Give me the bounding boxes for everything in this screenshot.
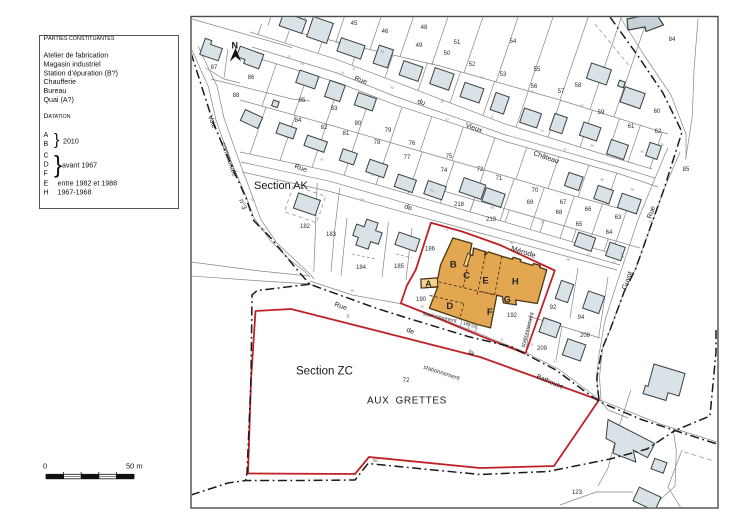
svg-text:70: 70 xyxy=(532,188,539,194)
svg-text:GRETTES: GRETTES xyxy=(396,396,447,407)
svg-text:58: 58 xyxy=(575,83,582,89)
svg-text:183: 183 xyxy=(326,232,337,238)
svg-text:46: 46 xyxy=(382,29,389,35)
svg-text:85: 85 xyxy=(299,98,306,104)
svg-text:219: 219 xyxy=(486,217,497,223)
svg-text:C: C xyxy=(463,271,470,282)
svg-text:Atelier de fabrication: Atelier de fabrication xyxy=(44,52,109,60)
svg-text:81: 81 xyxy=(343,131,350,137)
svg-text:64: 64 xyxy=(606,230,613,236)
svg-text:Station d’épuration (B?): Station d’épuration (B?) xyxy=(44,69,119,77)
svg-text:}: } xyxy=(54,132,60,149)
svg-text:B: B xyxy=(450,260,457,271)
svg-text:45: 45 xyxy=(351,21,358,27)
svg-text:190: 190 xyxy=(416,297,427,303)
svg-text:55: 55 xyxy=(534,67,541,73)
svg-text:68: 68 xyxy=(556,210,563,216)
svg-text:Magasin industriel: Magasin industriel xyxy=(44,60,102,68)
svg-text:H: H xyxy=(44,189,49,197)
svg-text:DATATION: DATATION xyxy=(44,113,71,120)
svg-text:192: 192 xyxy=(507,313,518,319)
svg-text:Chaufferie: Chaufferie xyxy=(44,78,77,86)
svg-text:74: 74 xyxy=(441,168,448,174)
svg-text:72: 72 xyxy=(477,167,484,173)
svg-text:69: 69 xyxy=(527,200,534,206)
svg-text:Bureau: Bureau xyxy=(44,87,67,95)
svg-text:84: 84 xyxy=(669,37,676,43)
svg-text:182: 182 xyxy=(300,224,311,230)
svg-text:2010: 2010 xyxy=(63,138,79,146)
svg-text:66: 66 xyxy=(585,207,592,213)
svg-text:63: 63 xyxy=(615,215,622,221)
svg-text:1967-1968: 1967-1968 xyxy=(58,189,92,197)
svg-text:208: 208 xyxy=(580,333,591,339)
svg-text:61: 61 xyxy=(628,124,635,130)
svg-text:A: A xyxy=(425,279,431,289)
svg-text:71: 71 xyxy=(496,176,503,182)
svg-text:50: 50 xyxy=(444,51,451,57)
svg-text:209: 209 xyxy=(537,346,548,352)
svg-text:53: 53 xyxy=(500,72,507,78)
svg-text:48: 48 xyxy=(421,25,428,31)
svg-text:75: 75 xyxy=(446,154,453,160)
svg-text:A: A xyxy=(44,131,49,139)
svg-text:76: 76 xyxy=(409,141,416,147)
svg-text:Quai (A?): Quai (A?) xyxy=(44,96,74,104)
svg-text:50 m: 50 m xyxy=(126,462,143,471)
svg-text:85: 85 xyxy=(683,167,690,173)
svg-text:F: F xyxy=(487,307,493,318)
svg-text:86: 86 xyxy=(248,75,255,81)
svg-text:E: E xyxy=(44,180,49,188)
svg-text:83: 83 xyxy=(331,106,338,112)
svg-text:57: 57 xyxy=(558,89,565,95)
svg-text:62: 62 xyxy=(655,129,662,135)
svg-text:87: 87 xyxy=(211,65,218,71)
svg-text:F: F xyxy=(44,170,49,178)
svg-text:avant 1967: avant 1967 xyxy=(62,162,97,170)
svg-text:54: 54 xyxy=(510,39,517,45)
svg-text:65: 65 xyxy=(576,222,583,228)
svg-text:80: 80 xyxy=(355,121,362,127)
svg-text:82: 82 xyxy=(321,125,328,131)
svg-text:218: 218 xyxy=(454,202,465,208)
svg-text:AUX: AUX xyxy=(367,396,389,407)
svg-text:123: 123 xyxy=(572,490,583,496)
svg-text:E: E xyxy=(482,276,488,287)
svg-text:0: 0 xyxy=(43,462,47,471)
svg-text:Section AK: Section AK xyxy=(254,180,308,192)
svg-text:186: 186 xyxy=(425,247,436,253)
svg-text:Section ZC: Section ZC xyxy=(296,366,353,378)
svg-text:72: 72 xyxy=(403,378,410,384)
svg-text:185: 185 xyxy=(394,264,405,270)
svg-text:51: 51 xyxy=(454,40,461,46)
svg-text:67: 67 xyxy=(560,200,567,206)
svg-text:59: 59 xyxy=(598,110,605,116)
svg-text:52: 52 xyxy=(469,62,476,68)
svg-text:entre 1982 et 1988: entre 1982 et 1988 xyxy=(58,180,118,188)
svg-text:78: 78 xyxy=(374,140,381,146)
svg-text:94: 94 xyxy=(578,315,585,321)
svg-text:B: B xyxy=(44,140,49,148)
svg-text:84: 84 xyxy=(295,118,302,124)
svg-text:184: 184 xyxy=(356,265,367,271)
svg-text:}: } xyxy=(54,152,62,179)
svg-text:92: 92 xyxy=(550,305,557,311)
svg-text:H: H xyxy=(512,276,519,287)
svg-text:PARTIES CONSTITUANTES: PARTIES CONSTITUANTES xyxy=(44,35,115,42)
svg-text:D: D xyxy=(44,161,49,169)
svg-text:D: D xyxy=(446,301,453,312)
svg-text:77: 77 xyxy=(404,155,411,161)
svg-text:49: 49 xyxy=(416,43,423,49)
svg-text:79: 79 xyxy=(385,128,392,134)
svg-text:C: C xyxy=(44,152,49,160)
svg-text:60: 60 xyxy=(654,109,661,115)
svg-text:G: G xyxy=(504,294,511,304)
svg-text:N: N xyxy=(232,41,239,51)
svg-text:88: 88 xyxy=(233,93,240,99)
